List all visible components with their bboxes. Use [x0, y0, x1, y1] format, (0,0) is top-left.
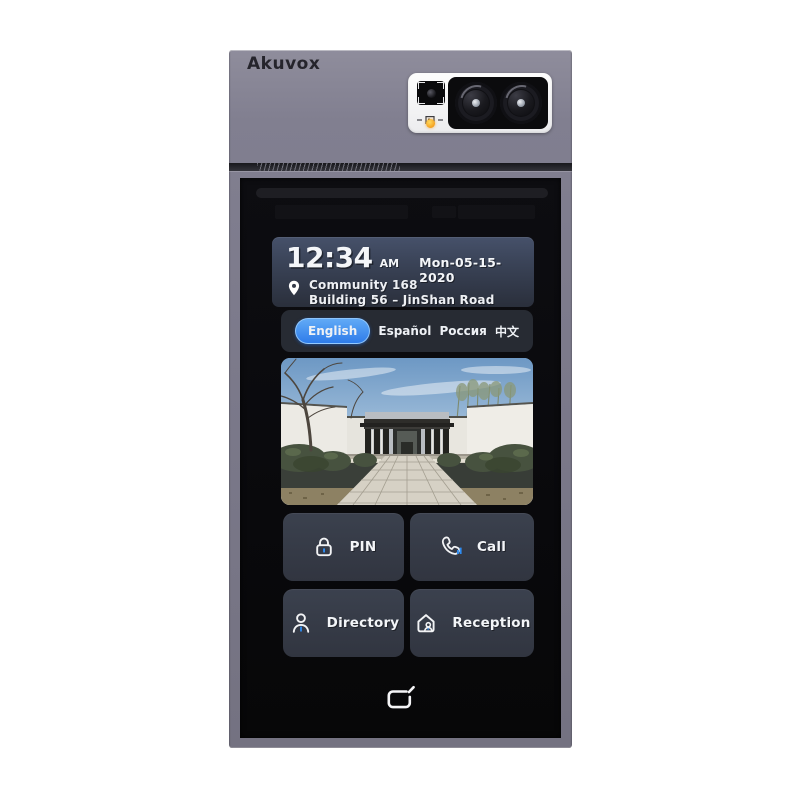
camera-module: [408, 73, 552, 133]
person-icon: [288, 610, 314, 636]
status-led: [426, 119, 435, 128]
directory-button[interactable]: Directory: [283, 589, 404, 657]
meridiem-label: AM: [380, 257, 399, 270]
language-selector: English Español Россия 中文: [281, 310, 533, 352]
glass-reflection: [458, 205, 535, 219]
product-photo-canvas: Akuvox: [0, 0, 800, 800]
location-line1: Community 168: [309, 278, 494, 293]
directory-button-label: Directory: [327, 615, 400, 631]
reception-button[interactable]: Reception: [410, 589, 534, 657]
camera-lens-left: [455, 82, 497, 124]
rfid-card-reader-icon: [383, 684, 419, 714]
house-person-icon: [413, 610, 439, 636]
community-photo: [281, 358, 533, 505]
pin-button[interactable]: PIN: [283, 513, 404, 581]
language-tab-english[interactable]: English: [295, 318, 370, 344]
glass-reflection-slot: [256, 188, 548, 198]
status-card: 12:34 AM Mon-05-15-2020 Community 168 Bu…: [272, 237, 534, 307]
time-display: 12:34: [286, 244, 373, 272]
phone-icon: [438, 534, 464, 560]
dual-camera-housing: [448, 77, 548, 129]
language-tab-espanol[interactable]: Español: [378, 324, 431, 338]
camera-lens-right: [500, 82, 542, 124]
location-text: Community 168 Building 56 – JinShan Road: [309, 278, 494, 308]
front-camera: [417, 81, 445, 105]
location-line2: Building 56 – JinShan Road: [309, 293, 494, 308]
action-button-grid: PIN Call: [283, 513, 534, 657]
glass-reflection: [275, 205, 408, 219]
speaker-groove: [229, 163, 572, 171]
language-tab-chinese[interactable]: 中文: [495, 323, 519, 340]
call-button[interactable]: Call: [410, 513, 534, 581]
reception-button-label: Reception: [452, 615, 530, 631]
pin-button-label: PIN: [350, 539, 377, 555]
intercom-device-frame: Akuvox: [229, 50, 572, 748]
qr-indicator-icon: [417, 109, 445, 117]
glass-reflection: [432, 206, 456, 218]
lock-icon: [311, 534, 337, 560]
call-button-label: Call: [477, 539, 506, 555]
touchscreen: 12:34 AM Mon-05-15-2020 Community 168 Bu…: [240, 178, 561, 738]
language-tab-russian[interactable]: Россия: [439, 324, 486, 338]
brand-logo: Akuvox: [247, 54, 320, 74]
map-pin-icon: [288, 280, 300, 296]
